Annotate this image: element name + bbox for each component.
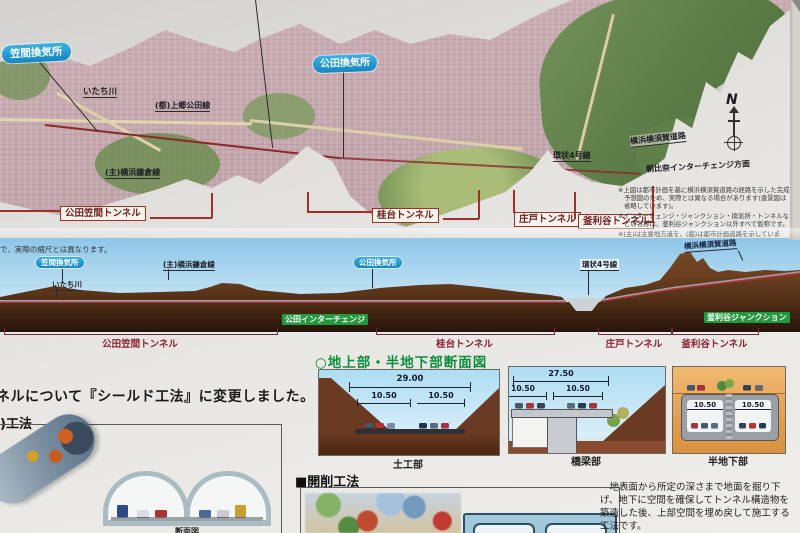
profile-label-yokohama-kamakura: (主)横浜鎌倉線	[163, 259, 215, 271]
dim-line	[509, 396, 547, 397]
profile-leader-vent-right	[372, 269, 373, 288]
compass-ring-cross-h	[724, 142, 743, 143]
profile-tunnel-2: 桂台トンネル	[376, 336, 553, 350]
semi-caption: 半地下部	[672, 453, 784, 468]
dim-tick	[602, 392, 603, 400]
car	[749, 423, 756, 428]
compass-needle	[733, 109, 735, 137]
compass-ring-cross-v	[734, 134, 735, 151]
earthwork-road	[355, 429, 465, 434]
map-vent-station-left: 笠間換気所	[2, 42, 71, 64]
profile-leader-kanjo4	[588, 270, 589, 295]
car	[365, 423, 373, 428]
dim-tick	[546, 392, 547, 400]
car	[526, 403, 534, 408]
car	[217, 510, 229, 517]
earthwork-dim-left: 10.50	[357, 391, 411, 400]
bridge-caption: 橋梁部	[508, 453, 664, 468]
profile-vent-right: 公田換気所	[354, 257, 402, 268]
dim-tick	[608, 376, 609, 386]
profile-ic-tag: 公田インターチェンジ	[282, 314, 368, 325]
profile-jct-tag: 釜利谷ジャンクション	[704, 312, 790, 323]
semi-dim-left: 10.50	[687, 401, 723, 410]
bridge-dim-right: 10.50	[553, 384, 603, 393]
bridge-dim-overall: 27.50	[513, 369, 609, 378]
semi-cell-left: 10.50	[687, 400, 723, 432]
compass-crossbar	[728, 120, 740, 122]
profile-road-line-1	[0, 300, 566, 303]
section-card-semiunderground: 10.50 10.50	[672, 366, 786, 454]
map-label-itachi-river: いたち川	[83, 85, 117, 98]
paper-fold-highlight	[0, 228, 800, 238]
semi-shaft	[726, 394, 732, 439]
profile-label-kanjo4: 環状4号線	[580, 259, 619, 271]
bracket-shodo-rtick	[574, 192, 576, 219]
cutcover-watercolor	[305, 493, 461, 533]
section-card-earthwork: 29.00 10.50 10.50	[318, 369, 500, 456]
semi-dim-right: 10.50	[735, 401, 771, 410]
profile-bracket-2	[376, 328, 555, 335]
profile-bracket-4	[672, 328, 759, 335]
profile-bracket-1	[4, 328, 278, 335]
tree	[617, 407, 629, 419]
bridge-pier	[547, 416, 577, 454]
vent-right-text: 公田換気所	[320, 57, 370, 70]
car	[387, 423, 395, 428]
profile-scale-note: で、実際の縮尺とは異なります。	[0, 244, 111, 255]
car	[578, 403, 586, 408]
map-label-kamigo-kuden: (都)上郷公田線	[155, 100, 210, 112]
dim-tick	[464, 399, 465, 407]
bracket-kuden-kasama-tick	[211, 193, 213, 218]
dim-line	[349, 387, 471, 388]
car	[755, 385, 763, 390]
car	[759, 423, 766, 428]
vent-left-text: 笠間換気所	[10, 46, 63, 61]
car	[743, 385, 751, 390]
car	[430, 423, 438, 428]
culvert-cell-right	[545, 523, 607, 533]
dim-line	[513, 381, 609, 382]
profile-tunnel-4: 釜利谷トンネル	[672, 336, 757, 350]
car	[687, 385, 695, 390]
profile-vent-right-text: 公田換気所	[359, 258, 397, 267]
bracket-katsuradai-right	[443, 218, 479, 220]
dim-tick	[357, 399, 358, 407]
map-tag-kuden-kasama-tunnel: 公田笠間トンネル	[60, 206, 146, 221]
profile-vent-left: 笠間換気所	[36, 257, 84, 268]
map-vent-station-right: 公田換気所	[313, 54, 378, 73]
twin-tunnel-caption: 断面図	[103, 526, 271, 533]
dim-tick	[470, 382, 471, 392]
car	[199, 510, 211, 517]
car	[235, 505, 246, 517]
car	[691, 423, 698, 428]
earthwork-ground	[319, 433, 499, 455]
brochure-photo: 笠間換気所 公田換気所 いたち川 (都)上郷公田線 (主)横浜鎌倉線 環状4号線…	[0, 0, 800, 533]
profile-leader-itachi	[56, 288, 57, 297]
car	[697, 385, 705, 390]
bridge-dim-left: 10.50	[508, 384, 545, 393]
car	[537, 403, 545, 408]
car	[567, 403, 575, 408]
car	[711, 423, 718, 428]
bridge-underpass	[512, 417, 548, 448]
dim-tick	[349, 382, 350, 392]
map-forest-center	[243, 93, 315, 139]
car	[376, 423, 384, 428]
map-tag-katsuradai-tunnel: 桂台トンネル	[372, 208, 439, 223]
tunnel-road	[111, 517, 263, 521]
car	[137, 510, 149, 517]
bridge-deck	[511, 409, 613, 418]
bracket-kuden-kasama-right	[150, 217, 212, 219]
car	[515, 403, 523, 408]
profile-vent-left-text: 笠間換気所	[41, 258, 79, 267]
car	[155, 510, 167, 517]
dim-tick	[410, 399, 411, 407]
map-label-kanjo4: 環状4号線	[553, 150, 591, 162]
cutcover-culvert	[463, 513, 617, 533]
profile-tunnel-3: 庄戸トンネル	[586, 336, 682, 350]
cutcover-description: 地表面から所定の深さまで地面を掘り下げ、地下に空間を確保してトンネル構造物を築造…	[600, 481, 798, 533]
paper-edge-right	[790, 0, 800, 240]
bracket-kuden-kasama-left	[0, 210, 60, 212]
leader-kuden-vent	[343, 68, 344, 158]
profile-bracket-3	[598, 328, 672, 335]
profile-leader-yk	[168, 269, 169, 280]
car	[739, 423, 746, 428]
car	[419, 423, 427, 428]
sections-heading: ○地上部・半地下部断面図	[315, 351, 487, 371]
tree	[725, 379, 734, 388]
map-tag-shodo-tunnel: 庄戸トンネル	[514, 212, 581, 227]
dim-line	[417, 403, 465, 404]
earthwork-dim-overall: 29.00	[349, 374, 471, 384]
semi-cell-right: 10.50	[735, 400, 771, 432]
map-note-2: ※インターチェンジ・ジャンクション・換気所・トンネルなどの名称は、釜利谷ジャンク…	[618, 212, 792, 228]
bracket-katsuradai-ltick	[307, 192, 309, 212]
car	[441, 423, 449, 428]
earthwork-caption: 土工部	[318, 456, 498, 471]
profile-tunnel-1: 公田笠間トンネル	[4, 336, 276, 350]
car	[701, 423, 708, 428]
earthwork-dim-right: 10.50	[417, 391, 465, 400]
car	[589, 403, 597, 408]
map-label-yokohama-kamakura: (主)横浜鎌倉線	[105, 167, 160, 179]
dim-line	[553, 396, 603, 397]
compass: N	[718, 92, 748, 152]
shield-headline: ネルについて『シールド工法』に変更しました。	[0, 386, 315, 406]
dim-line	[357, 403, 411, 404]
bracket-katsuradai-left	[307, 211, 372, 213]
bracket-katsuradai-rtick	[478, 190, 480, 219]
twin-tunnel-cross-section	[103, 468, 271, 526]
map-note-1: ※上図は都市計画を基に横浜横須賀道路の経路を示した完成予想図のため、実際とは異な…	[618, 186, 792, 210]
compass-needle-head	[729, 106, 739, 113]
bracket-shodo-ltick	[513, 190, 515, 213]
section-card-bridge: 27.50 10.50 10.50	[508, 366, 666, 454]
culvert-cell-left	[473, 523, 535, 533]
dim-tick	[553, 392, 554, 400]
car	[117, 505, 128, 517]
